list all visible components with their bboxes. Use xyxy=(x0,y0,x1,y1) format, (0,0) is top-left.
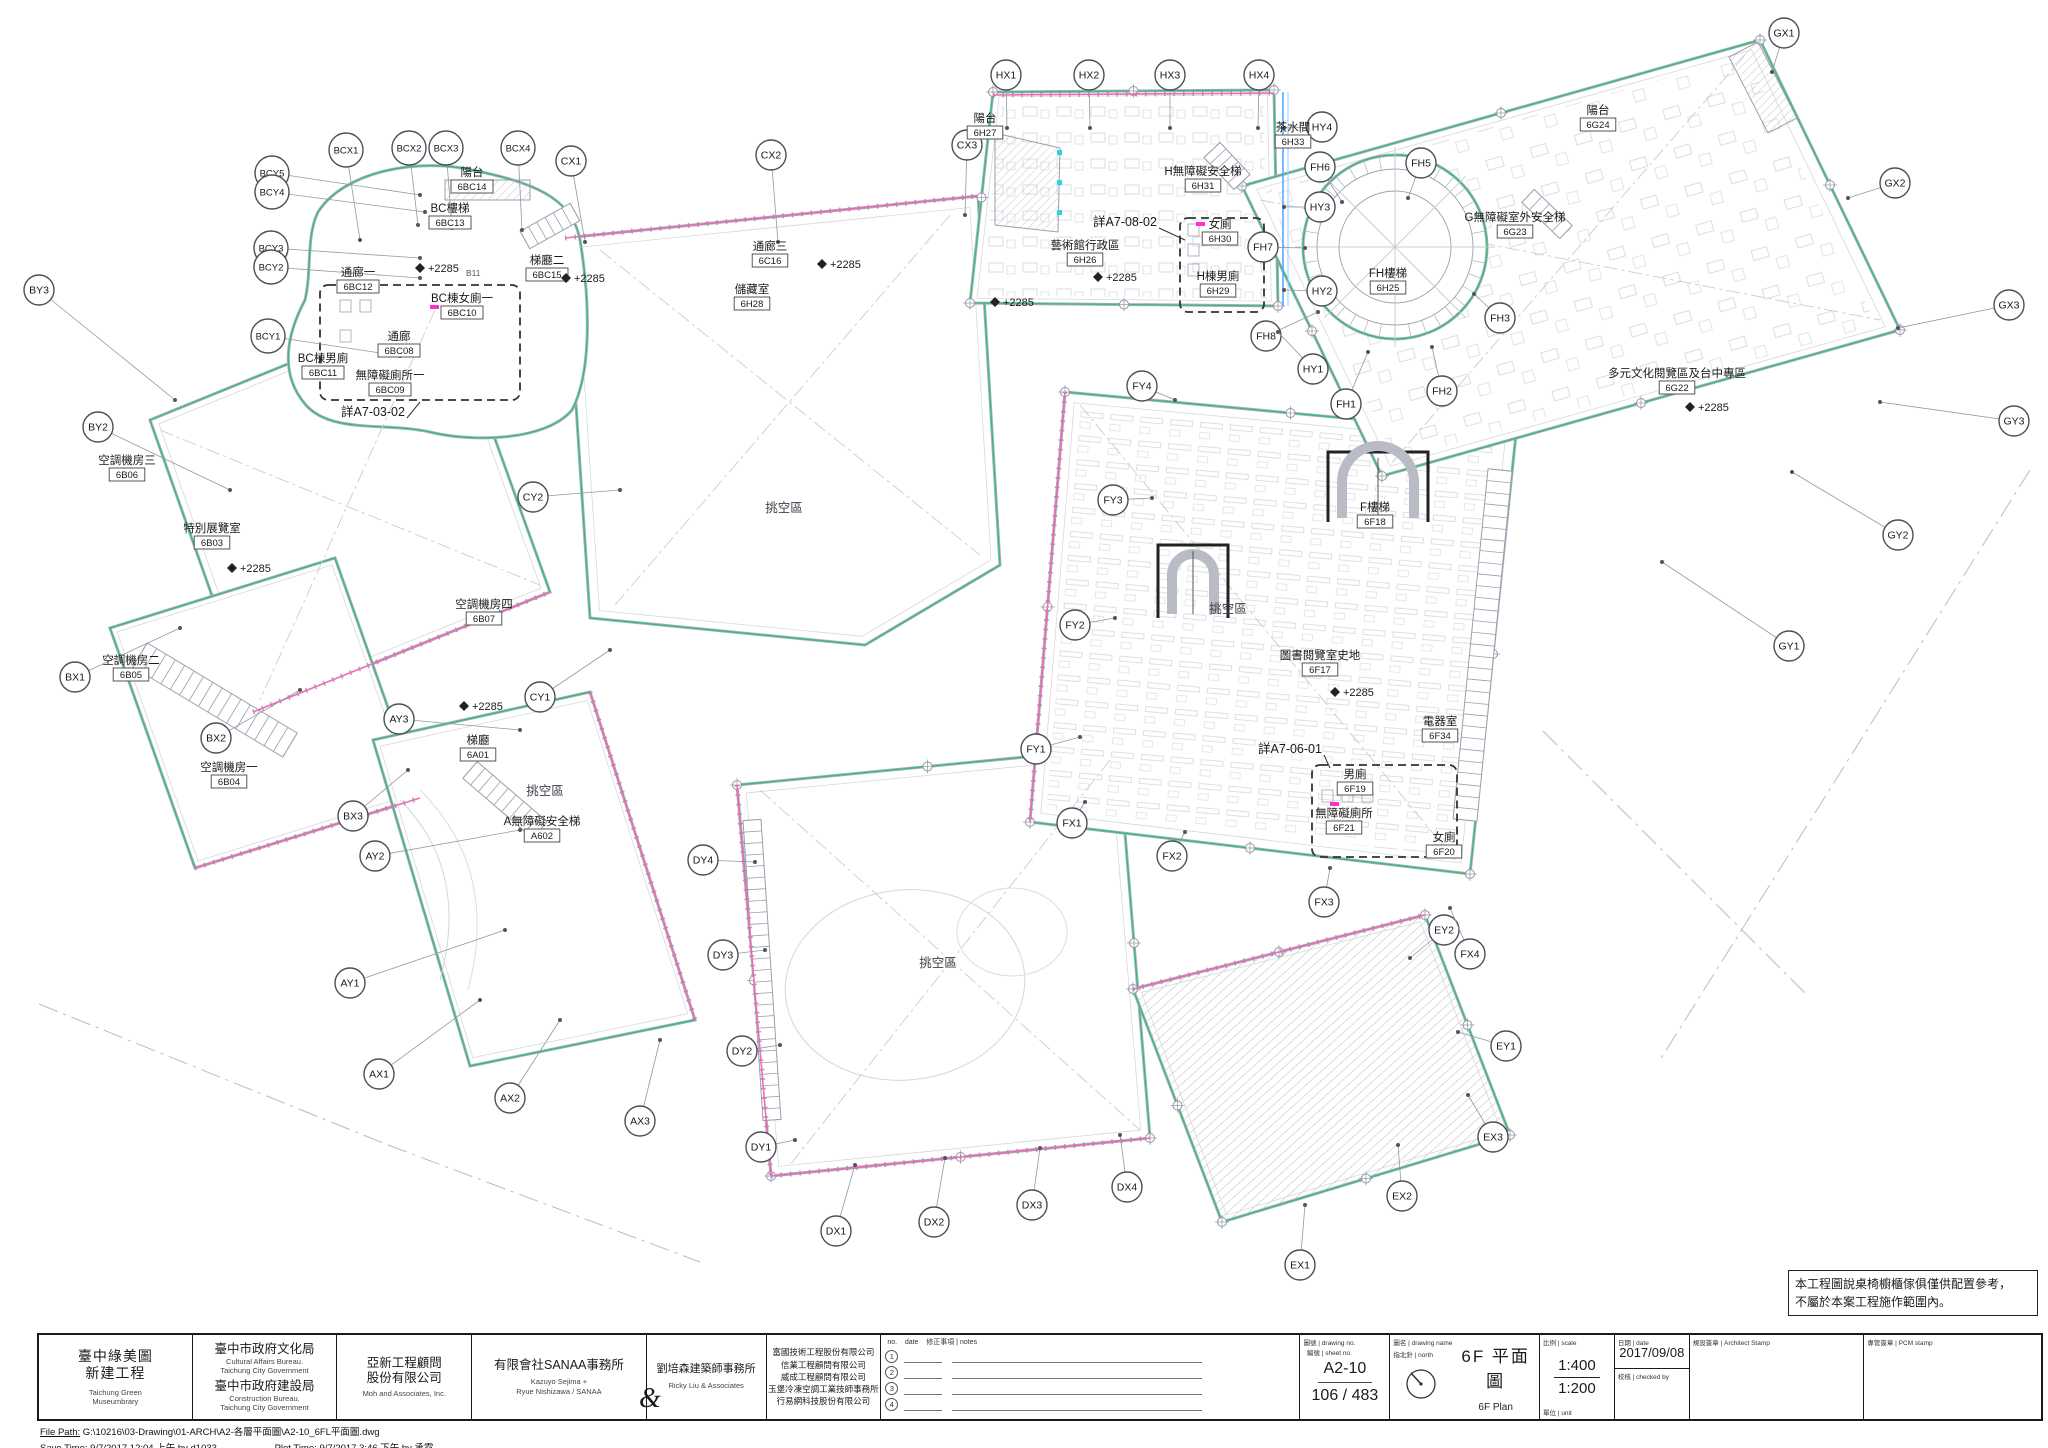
svg-text:DY3: DY3 xyxy=(713,950,734,962)
owner-cell: 臺中市政府文化局 Cultural Affairs Bureau. Taichu… xyxy=(192,1335,337,1419)
svg-text:CY2: CY2 xyxy=(523,492,544,504)
svg-text:EX3: EX3 xyxy=(1483,1132,1503,1144)
svg-text:特別展覽室: 特別展覽室 xyxy=(183,521,241,535)
elevation-mark: +2285 xyxy=(990,297,1034,309)
architect1-en-2: Ryue Nishizawa / SANAA xyxy=(516,1387,601,1396)
svg-text:HX3: HX3 xyxy=(1160,70,1181,82)
svg-text:6G22: 6G22 xyxy=(1665,383,1688,394)
svg-text:CX2: CX2 xyxy=(761,150,782,162)
owner-en-1: Cultural Affairs Bureau. xyxy=(226,1357,303,1366)
svg-text:+2285: +2285 xyxy=(1343,687,1374,699)
sheet-no-label: 編號 | sheet no. xyxy=(1307,1350,1352,1357)
svg-text:H棟男廁: H棟男廁 xyxy=(1197,269,1240,283)
svg-text:6H30: 6H30 xyxy=(1209,234,1232,245)
svg-text:HY1: HY1 xyxy=(1303,364,1324,376)
grid-bubble-DX1: DX1 xyxy=(821,1163,857,1246)
svg-text:+2285: +2285 xyxy=(1106,272,1137,284)
svg-text:FH3: FH3 xyxy=(1490,313,1510,325)
svg-text:AY3: AY3 xyxy=(389,714,408,726)
general-note: 本工程圖說桌椅櫥櫃傢俱僅供配置參考， 不屬於本案工程施作範圍內。 xyxy=(1788,1270,2038,1316)
grid-bubble-AX3: AX3 xyxy=(625,1038,662,1136)
consultants-cell: 富國技術工程股份有限公司 信業工程顧問有限公司 威成工程顧問有限公司 玉堡冷凍空… xyxy=(766,1335,881,1419)
svg-text:6BC14: 6BC14 xyxy=(457,182,486,193)
svg-text:6G23: 6G23 xyxy=(1503,227,1526,238)
svg-text:6F34: 6F34 xyxy=(1429,731,1451,742)
room-label-6B06: 空調機房三6B06 xyxy=(98,453,156,481)
checked-by-label: 校核 | checked by xyxy=(1618,1371,1669,1381)
drawing-number-cell: 圖號 | drawing no. 編號 | sheet no. A2-10 10… xyxy=(1299,1335,1389,1419)
svg-text:+2285: +2285 xyxy=(472,701,503,713)
svg-text:通廊: 通廊 xyxy=(388,329,411,343)
revision-no-label: no. xyxy=(887,1339,897,1346)
svg-text:FY4: FY4 xyxy=(1132,381,1151,393)
svg-text:6BC09: 6BC09 xyxy=(375,385,404,396)
architect1-zh: 有限會社SANAA事務所 xyxy=(494,1358,624,1373)
svg-text:6H27: 6H27 xyxy=(974,128,997,139)
fixture-accent xyxy=(430,305,439,309)
file-path-label: File Path: xyxy=(40,1427,80,1438)
scale-cell: 比例 | scale 1:400 1:200 單位 | unit xyxy=(1539,1335,1614,1419)
revision-number-icon: 1 xyxy=(885,1350,898,1363)
svg-text:A602: A602 xyxy=(531,831,553,842)
save-time-label: Save Time: xyxy=(40,1443,88,1448)
revision-row: 2 xyxy=(885,1364,1202,1379)
svg-text:6C16: 6C16 xyxy=(759,256,782,267)
svg-text:+2285: +2285 xyxy=(1003,297,1034,309)
note-line-2: 不屬於本案工程施作範圍內。 xyxy=(1795,1293,2031,1311)
svg-text:AX2: AX2 xyxy=(500,1093,520,1105)
svg-text:GX2: GX2 xyxy=(1884,178,1905,190)
svg-text:FH樓梯: FH樓梯 xyxy=(1369,266,1407,280)
svg-text:DX2: DX2 xyxy=(924,1217,945,1229)
svg-text:6BC13: 6BC13 xyxy=(435,218,464,229)
svg-text:FH1: FH1 xyxy=(1336,399,1356,411)
svg-text:6BC11: 6BC11 xyxy=(309,368,337,379)
consultant-3: 威成工程顧問有限公司 xyxy=(781,1371,866,1383)
svg-text:FY2: FY2 xyxy=(1065,620,1084,632)
svg-text:DY4: DY4 xyxy=(693,855,714,867)
svg-text:無障礙廁所: 無障礙廁所 xyxy=(1315,806,1373,820)
void-label: 挑空區 xyxy=(765,501,803,515)
svg-text:BCX1: BCX1 xyxy=(334,146,359,157)
drawing-sheet: BCY5BCY4BCY3BCY2BCY1BCX1BCX2BCX3BCX4BY3B… xyxy=(0,0,2048,1448)
svg-text:陽台: 陽台 xyxy=(1587,103,1610,117)
svg-text:DX3: DX3 xyxy=(1022,1200,1043,1212)
grid-bubble-GY3: GY3 xyxy=(1878,400,2029,436)
ampersand-glyph: & xyxy=(639,1383,661,1415)
svg-text:BX3: BX3 xyxy=(343,811,363,823)
svg-text:BY3: BY3 xyxy=(29,285,49,297)
svg-text:GY1: GY1 xyxy=(1778,641,1799,653)
svg-text:空調機房二: 空調機房二 xyxy=(102,653,160,667)
engineer-cell: 亞新工程顧問 股份有限公司 Moh and Associates, Inc. xyxy=(336,1335,471,1419)
grid-bubble-GX2: GX2 xyxy=(1846,168,1910,200)
svg-text:BCY4: BCY4 xyxy=(260,188,285,199)
detail-reference: 詳A7-08-02 xyxy=(1093,214,1157,229)
room-label-6H33: 茶水間6H33 xyxy=(1275,121,1311,148)
revision-table: no. date 修正事項 | notes 1 2 3 4 xyxy=(880,1335,1299,1419)
svg-text:FY3: FY3 xyxy=(1103,495,1122,507)
project-en-1: Taichung Green xyxy=(89,1388,142,1397)
revision-row: 4 xyxy=(885,1396,1202,1411)
void-label: 挑空區 xyxy=(526,784,564,798)
svg-text:HX4: HX4 xyxy=(1249,70,1270,82)
svg-text:儲藏室: 儲藏室 xyxy=(735,282,770,296)
svg-text:BCX4: BCX4 xyxy=(506,144,531,155)
scale-value-2: 1:200 xyxy=(1558,1380,1596,1398)
svg-text:6B04: 6B04 xyxy=(218,777,240,788)
architect2-zh: 劉培森建築師事務所 xyxy=(657,1363,756,1377)
svg-text:AX1: AX1 xyxy=(369,1069,389,1081)
svg-text:6H33: 6H33 xyxy=(1282,137,1305,148)
revision-row: 1 xyxy=(885,1348,1202,1363)
owner-en-4: Taichung City Government xyxy=(220,1403,308,1412)
svg-text:HX1: HX1 xyxy=(996,70,1017,82)
svg-text:女廁: 女廁 xyxy=(1433,830,1456,844)
svg-text:BCY2: BCY2 xyxy=(259,263,284,274)
date-value: 2017/09/08 xyxy=(1619,1345,1684,1360)
owner-en-3: Construction Bureau. xyxy=(229,1394,299,1403)
revision-notes-label: 修正事項 | notes xyxy=(926,1339,977,1346)
void-label: 挑空區 xyxy=(1209,602,1247,616)
grid-bubble-FX3: FX3 xyxy=(1309,866,1339,917)
svg-text:+2285: +2285 xyxy=(240,563,271,575)
svg-text:BX2: BX2 xyxy=(206,733,226,745)
fixture-accent xyxy=(1330,802,1339,806)
svg-text:6H28: 6H28 xyxy=(741,299,764,310)
svg-text:6B05: 6B05 xyxy=(120,670,142,681)
svg-text:6B06: 6B06 xyxy=(116,470,138,481)
svg-text:FY1: FY1 xyxy=(1026,744,1045,756)
consultant-2: 信業工程顧問有限公司 xyxy=(781,1359,866,1371)
svg-text:EY2: EY2 xyxy=(1434,925,1454,937)
owner-en-2: Taichung City Government xyxy=(220,1366,308,1375)
svg-text:+2285: +2285 xyxy=(574,273,605,285)
north-label: 指北針 | north xyxy=(1393,1349,1433,1359)
engineer-zh-2: 股份有限公司 xyxy=(367,1371,442,1386)
svg-text:DX1: DX1 xyxy=(826,1226,847,1238)
detail-reference: 詳A7-06-01 xyxy=(1258,741,1322,756)
pcm-stamp-cell: 專管簽章 | PCM stamp xyxy=(1863,1335,2041,1419)
svg-text:茶水間: 茶水間 xyxy=(1276,121,1311,134)
svg-text:GY3: GY3 xyxy=(2003,416,2024,428)
architect-stamp-label: 規設簽章 | Architect Stamp xyxy=(1693,1337,1770,1347)
elevation-mark: +2285 xyxy=(1685,402,1729,414)
svg-text:6BC10: 6BC10 xyxy=(447,308,476,319)
owner-zh-2: 臺中市政府建設局 xyxy=(215,1379,315,1394)
project-zh-2: 新建工程 xyxy=(85,1365,145,1383)
grid-bubble-GY1: GY1 xyxy=(1660,560,1804,661)
floor-plan-canvas: BCY5BCY4BCY3BCY2BCY1BCX1BCX2BCX3BCX4BY3B… xyxy=(0,0,2048,1448)
svg-text:FX4: FX4 xyxy=(1460,949,1479,961)
svg-text:6F21: 6F21 xyxy=(1333,823,1355,834)
svg-text:無障礙廁所一: 無障礙廁所一 xyxy=(356,368,425,382)
svg-text:HY4: HY4 xyxy=(1312,122,1333,134)
svg-text:BC棟女廁一: BC棟女廁一 xyxy=(431,291,493,305)
plot-time-value: 9/7/2017 3:46 下午 by 承霓 xyxy=(319,1443,433,1448)
svg-text:6B07: 6B07 xyxy=(473,614,495,625)
svg-text:6B03: 6B03 xyxy=(201,538,223,549)
svg-text:空調機房一: 空調機房一 xyxy=(200,760,258,774)
svg-text:6F17: 6F17 xyxy=(1309,665,1331,676)
svg-text:藝術館行政區: 藝術館行政區 xyxy=(1051,238,1120,252)
consultant-1: 富國技術工程股份有限公司 xyxy=(772,1346,874,1358)
svg-text:CX3: CX3 xyxy=(957,140,978,152)
svg-text:EY1: EY1 xyxy=(1496,1041,1516,1053)
revision-number-icon: 2 xyxy=(885,1366,898,1379)
svg-text:空調機房四: 空調機房四 xyxy=(455,597,513,611)
scale-label: 比例 | scale xyxy=(1543,1337,1576,1347)
project-en-2: Museumbrary xyxy=(92,1397,138,1406)
svg-text:CY1: CY1 xyxy=(530,692,551,704)
svg-text:BCX3: BCX3 xyxy=(434,144,459,155)
svg-text:6F18: 6F18 xyxy=(1364,517,1386,528)
fixture-accent xyxy=(1196,222,1205,226)
note-line-1: 本工程圖說桌椅櫥櫃傢俱僅供配置參考， xyxy=(1795,1275,2031,1293)
scale-value-1: 1:400 xyxy=(1558,1357,1596,1375)
revision-number-icon: 4 xyxy=(885,1398,898,1411)
grid-bubble-EX1: EX1 xyxy=(1285,1203,1315,1280)
svg-text:FX3: FX3 xyxy=(1314,897,1333,909)
svg-text:FH7: FH7 xyxy=(1253,242,1273,254)
drawing-number: A2-10 xyxy=(1324,1359,1367,1378)
grid-bubble-DX2: DX2 xyxy=(919,1156,949,1237)
svg-text:通廊一: 通廊一 xyxy=(341,265,376,279)
svg-text:EX2: EX2 xyxy=(1392,1191,1412,1203)
drawing-name-en: 6F Plan xyxy=(1478,1402,1512,1413)
grid-bubble-DX3: DX3 xyxy=(1017,1146,1047,1220)
sheet-number: 106 / 483 xyxy=(1312,1386,1379,1405)
svg-text:AY1: AY1 xyxy=(340,978,359,990)
svg-text:F樓梯: F樓梯 xyxy=(1360,500,1390,514)
svg-text:+2285: +2285 xyxy=(1698,402,1729,414)
project-name-cell: 臺中綠美圖 新建工程 Taichung Green Museumbrary xyxy=(39,1335,192,1419)
svg-text:電器室: 電器室 xyxy=(1423,714,1458,728)
svg-text:DX4: DX4 xyxy=(1117,1182,1138,1194)
svg-text:HX2: HX2 xyxy=(1079,70,1100,82)
title-block: 臺中綠美圖 新建工程 Taichung Green Museumbrary 臺中… xyxy=(37,1333,2043,1421)
north-area: 指北針 | north xyxy=(1390,1335,1452,1419)
elevation-mark: +2285 xyxy=(459,701,503,713)
svg-text:DY2: DY2 xyxy=(732,1046,753,1058)
svg-text:FX1: FX1 xyxy=(1062,818,1081,830)
engineer-en: Moh and Associates, Inc. xyxy=(363,1389,446,1398)
svg-text:男廁: 男廁 xyxy=(1344,767,1367,781)
svg-text:6H26: 6H26 xyxy=(1074,255,1097,266)
svg-text:FH8: FH8 xyxy=(1256,331,1276,343)
svg-text:女廁: 女廁 xyxy=(1209,217,1232,231)
svg-text:6BC12: 6BC12 xyxy=(343,282,372,293)
date-cell: 日期 | date 2017/09/08 校核 | checked by xyxy=(1614,1335,1689,1419)
svg-text:FH5: FH5 xyxy=(1411,158,1431,170)
architect-stamp-cell: 規設簽章 | Architect Stamp xyxy=(1689,1335,1864,1419)
svg-text:BCX2: BCX2 xyxy=(397,144,422,155)
svg-text:+2285: +2285 xyxy=(830,259,861,271)
svg-text:BX1: BX1 xyxy=(65,672,85,684)
architect2-cell: 劉培森建築師事務所 Ricky Liu & Associates xyxy=(646,1335,766,1419)
grid-bubble-DX4: DX4 xyxy=(1112,1133,1142,1202)
consultant-5: 行易網科技股份有限公司 xyxy=(777,1395,871,1407)
drawing-no-label: 圖號 | drawing no. 編號 | sheet no. xyxy=(1303,1337,1355,1357)
svg-text:6H29: 6H29 xyxy=(1207,286,1230,297)
owner-zh-1: 臺中市政府文化局 xyxy=(215,1342,315,1357)
svg-text:+2285: +2285 xyxy=(428,263,459,275)
grid-bubble-BY3: BY3 xyxy=(24,275,177,402)
balcony-hatch xyxy=(995,133,1060,232)
svg-text:6F19: 6F19 xyxy=(1344,784,1366,795)
svg-text:空調機房三: 空調機房三 xyxy=(98,453,156,467)
svg-text:梯廳二: 梯廳二 xyxy=(530,253,565,267)
svg-text:BC樓梯: BC樓梯 xyxy=(431,201,470,215)
svg-text:6H25: 6H25 xyxy=(1377,283,1400,294)
grid-bubble-FY4: FY4 xyxy=(1127,371,1177,402)
svg-text:梯廳: 梯廳 xyxy=(467,733,490,747)
revision-number-icon: 3 xyxy=(885,1382,898,1395)
svg-text:通廊三: 通廊三 xyxy=(753,239,788,253)
svg-text:EX1: EX1 xyxy=(1290,1260,1310,1272)
plot-time-label: Plot Time: xyxy=(275,1443,317,1448)
svg-text:FH2: FH2 xyxy=(1432,386,1452,398)
file-path-value: G:\10216\03-Drawing\01-ARCH\A2-各層平面圖\A2-… xyxy=(83,1427,380,1438)
svg-text:AY2: AY2 xyxy=(365,851,384,863)
architect2-en: Ricky Liu & Associates xyxy=(668,1381,743,1390)
revision-row: 3 xyxy=(885,1380,1202,1395)
revision-header: no. date 修正事項 | notes xyxy=(887,1337,977,1347)
svg-text:H無障礙安全梯: H無障礙安全梯 xyxy=(1164,164,1241,178)
engineer-zh-1: 亞新工程顧問 xyxy=(367,1356,442,1371)
detail-reference: 詳A7-03-02 xyxy=(341,404,405,419)
drawing-name-zh: 6F 平面圖 xyxy=(1452,1342,1539,1392)
wing-A xyxy=(373,692,695,1066)
svg-text:BC棟男廁: BC棟男廁 xyxy=(298,351,348,365)
svg-text:GX3: GX3 xyxy=(1998,300,2019,312)
svg-text:GX1: GX1 xyxy=(1773,28,1794,40)
architect1-cell: 有限會社SANAA事務所 Kazuyo Sejima + Ryue Nishiz… xyxy=(471,1335,646,1419)
consultant-4: 玉堡冷凍空調工業技師事務所 xyxy=(768,1383,879,1395)
svg-text:AX3: AX3 xyxy=(630,1116,650,1128)
svg-text:HY3: HY3 xyxy=(1310,202,1331,214)
svg-text:6BC15: 6BC15 xyxy=(532,270,561,281)
svg-text:多元文化閱覽區及台中專區: 多元文化閱覽區及台中專區 xyxy=(1608,366,1746,380)
svg-text:陽台: 陽台 xyxy=(461,165,484,179)
svg-text:HY2: HY2 xyxy=(1312,286,1333,298)
unit-label: 單位 | unit xyxy=(1543,1407,1572,1417)
svg-text:GY2: GY2 xyxy=(1887,530,1908,542)
svg-text:6H31: 6H31 xyxy=(1192,181,1215,192)
architect1-en-1: Kazuyo Sejima + xyxy=(531,1377,588,1386)
svg-text:DY1: DY1 xyxy=(751,1142,772,1154)
svg-text:6F20: 6F20 xyxy=(1433,847,1455,858)
svg-text:圖書閱覽室史地: 圖書閱覽室史地 xyxy=(1280,648,1361,662)
wing-F xyxy=(1023,385,1523,881)
grid-bubble-GX3: GX3 xyxy=(1896,290,2024,330)
pcm-stamp-label: 專管簽章 | PCM stamp xyxy=(1867,1337,1932,1347)
svg-text:6A01: 6A01 xyxy=(467,750,489,761)
column-tag: B11 xyxy=(466,268,481,278)
north-compass-icon xyxy=(1402,1365,1440,1403)
grid-bubble-GY2: GY2 xyxy=(1790,470,1913,550)
svg-text:6BC08: 6BC08 xyxy=(384,346,413,357)
svg-text:BCY1: BCY1 xyxy=(256,332,281,343)
save-time-value: 9/7/2017 12:04 上午 by d1033 xyxy=(90,1443,217,1448)
svg-text:BY2: BY2 xyxy=(88,422,108,434)
void-label: 挑空區 xyxy=(919,956,957,970)
project-zh-1: 臺中綠美圖 xyxy=(78,1348,153,1366)
file-info: File Path: G:\10216\03-Drawing\01-ARCH\A… xyxy=(40,1424,434,1448)
svg-text:陽台: 陽台 xyxy=(974,111,997,125)
svg-text:FH6: FH6 xyxy=(1310,162,1330,174)
svg-text:G無障礙室外安全梯: G無障礙室外安全梯 xyxy=(1465,210,1566,224)
drawing-name-cell: 圖名 | drawing name 指北針 | north 6F 平面圖 6F … xyxy=(1389,1335,1539,1419)
svg-text:A無障礙安全梯: A無障礙安全梯 xyxy=(504,814,581,828)
svg-text:6G24: 6G24 xyxy=(1586,120,1609,131)
date-label: 日期 | date xyxy=(1618,1337,1649,1347)
svg-text:CX1: CX1 xyxy=(561,156,582,168)
revision-date-label: date xyxy=(905,1339,919,1346)
svg-text:FX2: FX2 xyxy=(1162,851,1181,863)
